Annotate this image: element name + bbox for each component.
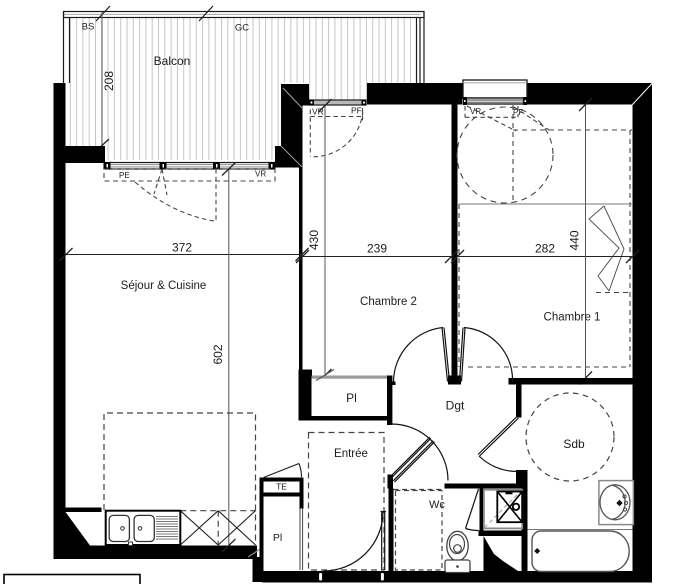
svg-text:PE: PE [119, 171, 130, 180]
svg-text:440: 440 [568, 230, 582, 250]
svg-text:602: 602 [211, 344, 225, 364]
svg-text:Pl: Pl [273, 532, 282, 544]
svg-text:Chambre 2: Chambre 2 [360, 296, 417, 308]
svg-text:VR: VR [470, 107, 481, 116]
svg-text:Chambre 1: Chambre 1 [544, 312, 601, 324]
svg-text:Dgt: Dgt [446, 399, 465, 413]
svg-text:PF: PF [351, 106, 362, 116]
svg-text:VR: VR [255, 170, 266, 179]
svg-text:208: 208 [102, 71, 116, 91]
svg-text:BS: BS [82, 22, 95, 33]
svg-text:372: 372 [172, 241, 192, 255]
svg-text:Séjour & Cuisine: Séjour & Cuisine [121, 280, 207, 292]
svg-text:239: 239 [367, 242, 387, 256]
svg-text:Wc: Wc [429, 499, 445, 511]
svg-text:Entrée: Entrée [334, 448, 368, 460]
svg-text:430: 430 [307, 230, 321, 250]
svg-text:GC: GC [235, 23, 249, 34]
svg-text:PF: PF [513, 108, 523, 117]
svg-text:282: 282 [535, 242, 555, 256]
svg-text:Balcon: Balcon [154, 54, 191, 68]
svg-text:TE: TE [276, 482, 287, 492]
svg-text:Sdb: Sdb [563, 437, 585, 451]
svg-text:Pl: Pl [346, 391, 357, 405]
